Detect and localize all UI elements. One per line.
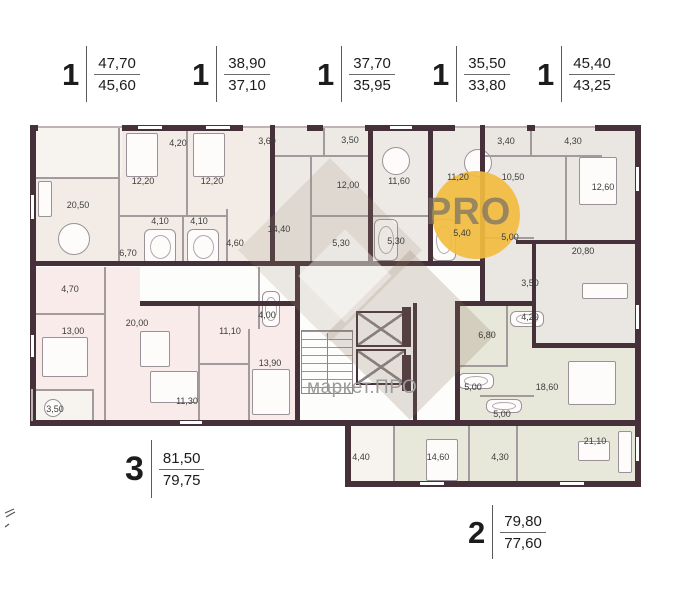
room-area-label: 20,00 bbox=[126, 318, 149, 328]
partition bbox=[482, 155, 602, 157]
balcony-railing bbox=[243, 126, 307, 128]
room-area-label: 4,20 bbox=[521, 312, 539, 322]
outer-wall bbox=[30, 125, 38, 131]
area-living: 45,60 bbox=[94, 74, 140, 94]
fraction-bar bbox=[86, 46, 87, 102]
floor-plan-page: 1 47,70 45,60 1 38,90 37,10 1 37,70 35,9… bbox=[0, 0, 691, 600]
outer-wall bbox=[595, 125, 641, 131]
floor-plan: PRO маркет.ПРО 4,2012,2012,2020,504,104,… bbox=[30, 125, 641, 493]
area-living: 43,25 bbox=[569, 74, 615, 94]
window bbox=[636, 305, 639, 329]
area-total: 47,70 bbox=[94, 55, 140, 74]
bed-icon bbox=[568, 361, 616, 405]
sofa-icon bbox=[582, 283, 628, 299]
room-area-label: 12,60 bbox=[592, 182, 615, 192]
partition bbox=[480, 395, 534, 397]
room-area-label: 4,10 bbox=[190, 216, 208, 226]
apartment-summary-2[interactable]: 1 38,90 37,10 bbox=[192, 46, 270, 102]
area-total: 81,50 bbox=[159, 450, 205, 469]
partition bbox=[248, 329, 250, 421]
balcony-railing bbox=[38, 126, 122, 128]
area-living: 79,75 bbox=[159, 469, 205, 489]
apartment-summary-1[interactable]: 1 47,70 45,60 bbox=[62, 46, 140, 102]
outer-wall bbox=[30, 125, 36, 426]
window bbox=[31, 195, 34, 219]
room-area-label: 12,00 bbox=[337, 180, 360, 190]
wall bbox=[516, 240, 636, 244]
room-area-label: 3,50 bbox=[521, 278, 539, 288]
bed-icon bbox=[42, 337, 88, 377]
sofa-icon bbox=[38, 181, 52, 217]
bathtub-icon bbox=[187, 229, 219, 265]
fraction-bar bbox=[341, 46, 342, 102]
bathtub-icon bbox=[262, 291, 280, 327]
fraction-bar bbox=[151, 440, 152, 498]
room-area-label: 21,10 bbox=[584, 436, 607, 446]
area-living: 37,10 bbox=[224, 74, 270, 94]
partition bbox=[530, 127, 532, 155]
outer-wall bbox=[527, 125, 535, 131]
room-area-label: 4,10 bbox=[151, 216, 169, 226]
room-area-label: 11,30 bbox=[176, 396, 198, 406]
window bbox=[636, 437, 639, 461]
partition bbox=[393, 425, 395, 486]
apartment-summary-5[interactable]: 1 45,40 43,25 bbox=[537, 46, 615, 102]
room-area-label: 11,20 bbox=[447, 172, 469, 182]
outer-wall bbox=[30, 420, 641, 426]
room-area-label: 6,70 bbox=[119, 248, 137, 258]
partition bbox=[92, 389, 94, 421]
window bbox=[206, 126, 230, 129]
wall bbox=[532, 343, 641, 348]
room-area-label: 4,00 bbox=[258, 310, 276, 320]
partition bbox=[36, 177, 120, 179]
area-living: 77,60 bbox=[500, 532, 546, 552]
table-icon bbox=[58, 223, 90, 255]
apartment-rooms-count: 1 bbox=[192, 59, 209, 90]
room-area-label: 5,30 bbox=[332, 238, 350, 248]
partition bbox=[226, 209, 228, 263]
bed-icon bbox=[126, 133, 158, 177]
partition bbox=[104, 267, 106, 421]
room-area-label: 4,30 bbox=[491, 452, 509, 462]
apartment-summary-7[interactable]: 2 79,80 77,60 bbox=[468, 505, 546, 559]
apartment-rooms-count: 1 bbox=[62, 59, 79, 90]
fraction-bar bbox=[492, 505, 493, 559]
room-area-label: 18,60 bbox=[536, 382, 559, 392]
balcony-railing bbox=[535, 126, 595, 128]
room-area-label: 13,90 bbox=[259, 358, 282, 368]
outer-wall bbox=[345, 481, 641, 487]
window bbox=[420, 482, 444, 485]
apartment-rooms-count: 3 bbox=[125, 452, 144, 486]
bed-icon bbox=[252, 369, 290, 415]
apartment-summary-3[interactable]: 1 37,70 35,95 bbox=[317, 46, 395, 102]
balcony-railing bbox=[31, 389, 33, 421]
partition bbox=[36, 313, 104, 315]
partition bbox=[198, 303, 200, 421]
room-area-label: 11,60 bbox=[388, 176, 410, 186]
area-total: 79,80 bbox=[500, 513, 546, 532]
balcony-area bbox=[36, 127, 122, 177]
bathtub-icon bbox=[144, 229, 176, 265]
area-total: 35,50 bbox=[464, 55, 510, 74]
window bbox=[636, 167, 639, 191]
room-area-label: 6,80 bbox=[478, 330, 496, 340]
table-icon bbox=[382, 147, 410, 175]
room-area-label: 4,40 bbox=[352, 452, 370, 462]
balcony-railing bbox=[455, 126, 527, 128]
window bbox=[390, 126, 412, 129]
partition bbox=[272, 155, 368, 157]
room-area-label: 5,00 bbox=[501, 232, 519, 242]
room-area-label: 4,20 bbox=[169, 138, 187, 148]
partition bbox=[118, 215, 228, 217]
corner-mark bbox=[2, 503, 22, 539]
room-area-label: 13,00 bbox=[62, 326, 85, 336]
room-area-label: 3,50 bbox=[341, 135, 359, 145]
area-living: 33,80 bbox=[464, 74, 510, 94]
room-area-label: 5,00 bbox=[493, 409, 511, 419]
partition bbox=[118, 127, 120, 263]
room-area-label: 4,30 bbox=[564, 136, 582, 146]
partition bbox=[198, 363, 248, 365]
room-area-label: 10,50 bbox=[502, 172, 525, 182]
partition bbox=[468, 425, 470, 486]
fraction-bar bbox=[561, 46, 562, 102]
partition bbox=[565, 155, 567, 240]
room-area-label: 11,10 bbox=[219, 326, 241, 336]
room-area-label: 14,40 bbox=[268, 224, 291, 234]
partition bbox=[458, 365, 508, 367]
outer-wall bbox=[345, 425, 351, 487]
apartment-summary-4[interactable]: 1 35,50 33,80 bbox=[432, 46, 510, 102]
window bbox=[31, 335, 34, 357]
bed-icon bbox=[579, 157, 617, 205]
partition bbox=[323, 127, 325, 155]
area-total: 37,70 bbox=[349, 55, 395, 74]
apartment-rooms-count: 2 bbox=[468, 517, 485, 548]
room-area-label: 12,20 bbox=[132, 176, 155, 186]
room-area-label: 4,60 bbox=[226, 238, 244, 248]
room-area-label: 20,80 bbox=[572, 246, 595, 256]
fraction-bar bbox=[216, 46, 217, 102]
room-area-label: 14,60 bbox=[427, 452, 450, 462]
apartment-rooms-count: 1 bbox=[317, 59, 334, 90]
room-area-label: 5,40 bbox=[453, 228, 471, 238]
room-area-label: 12,20 bbox=[201, 176, 224, 186]
partition bbox=[36, 389, 92, 391]
room-area-label: 5,00 bbox=[464, 382, 482, 392]
partition bbox=[182, 217, 184, 263]
room-area-label: 3,50 bbox=[46, 404, 64, 414]
apartment-rooms-count: 1 bbox=[432, 59, 449, 90]
dining-table-icon bbox=[140, 331, 170, 367]
partition bbox=[506, 303, 508, 365]
balcony-railing bbox=[323, 126, 365, 128]
bed-icon bbox=[193, 133, 225, 177]
area-total: 38,90 bbox=[224, 55, 270, 74]
outer-wall bbox=[307, 125, 323, 131]
area-total: 45,40 bbox=[569, 55, 615, 74]
wall bbox=[458, 301, 536, 306]
apartment-summary-6[interactable]: 3 81,50 79,75 bbox=[125, 440, 204, 498]
window bbox=[560, 482, 584, 485]
watermark-site-text: маркет.ПРО bbox=[307, 377, 417, 399]
area-living: 35,95 bbox=[349, 74, 395, 94]
partition bbox=[516, 425, 518, 486]
wall bbox=[532, 240, 536, 347]
wall bbox=[140, 301, 300, 306]
sofa-icon bbox=[618, 431, 632, 473]
room-area-label: 4,70 bbox=[61, 284, 79, 294]
apartment-rooms-count: 1 bbox=[537, 59, 554, 90]
window bbox=[180, 421, 202, 424]
room-area-label: 5,30 bbox=[387, 236, 405, 246]
room-area-label: 3,60 bbox=[258, 136, 276, 146]
fraction-bar bbox=[456, 46, 457, 102]
room-area-label: 3,40 bbox=[497, 136, 515, 146]
window bbox=[138, 126, 162, 129]
room-area-label: 20,50 bbox=[67, 200, 90, 210]
